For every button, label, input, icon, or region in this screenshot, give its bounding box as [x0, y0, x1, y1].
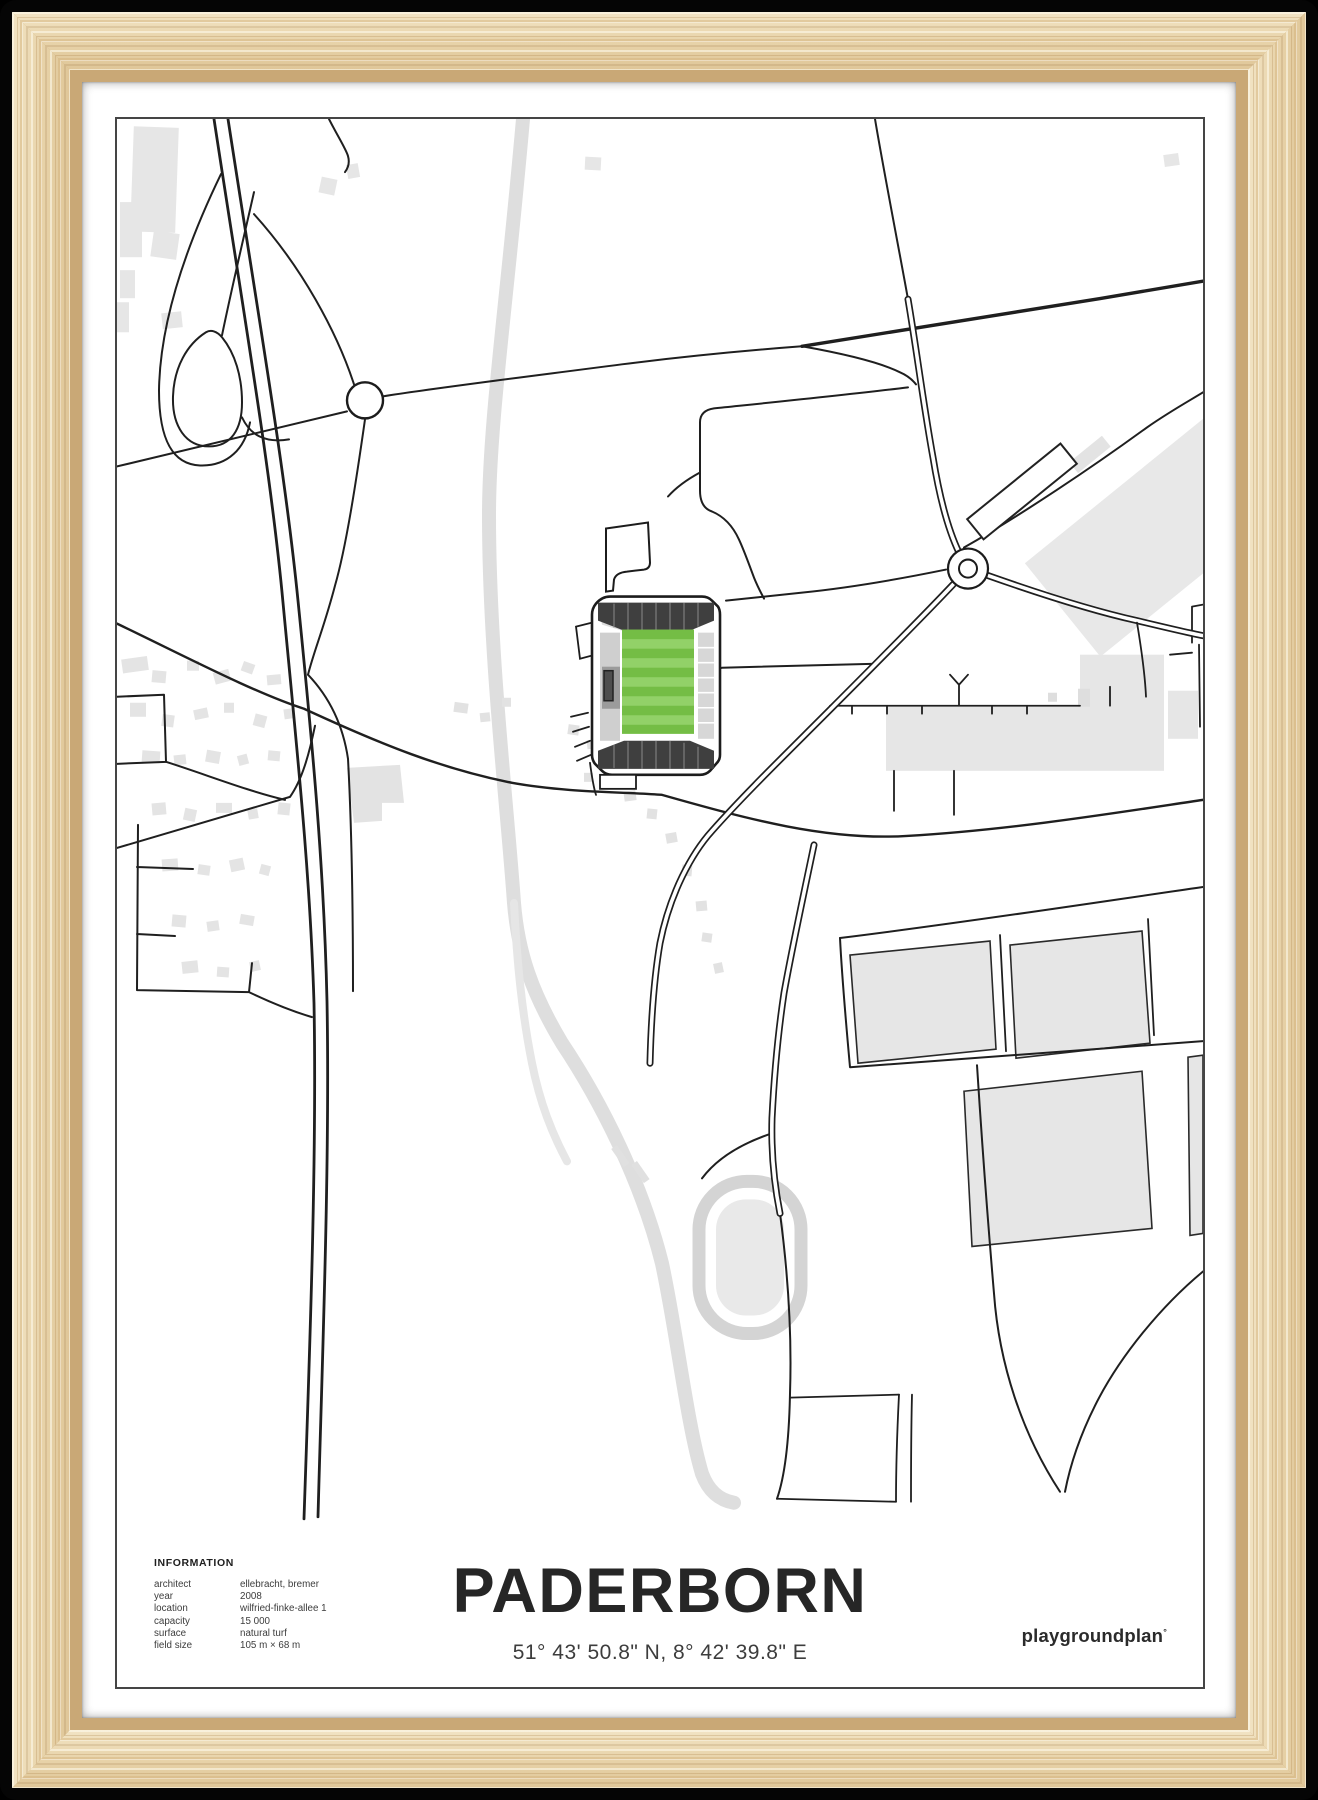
- poster-title: PADERBORN: [117, 1555, 1203, 1627]
- outlined-warehouse: [967, 444, 1077, 540]
- frame-wood-left: [12, 12, 70, 1788]
- roundabouts: [347, 382, 988, 588]
- framed-poster-photo: INFORMATION architect ellebracht, bremer…: [0, 0, 1318, 1800]
- poster: INFORMATION architect ellebracht, bremer…: [115, 117, 1205, 1689]
- roads: [117, 119, 1203, 1519]
- brand-mark: °: [1163, 1627, 1167, 1637]
- stadium-map-svg: [117, 119, 1203, 1687]
- frame-wood-top: [12, 12, 1306, 70]
- info-label: surface: [154, 1628, 240, 1640]
- info-value: natural turf: [240, 1628, 287, 1640]
- frame-wood-right: [1248, 12, 1306, 1788]
- brand-wordmark: playgroundplan°: [1022, 1625, 1167, 1647]
- stadium-pitch: [622, 630, 694, 734]
- brand-name: playgroundplan: [1022, 1625, 1164, 1646]
- info-row: surface natural turf: [154, 1628, 327, 1640]
- frame-wood-bottom: [12, 1730, 1306, 1788]
- stadium: [576, 523, 720, 789]
